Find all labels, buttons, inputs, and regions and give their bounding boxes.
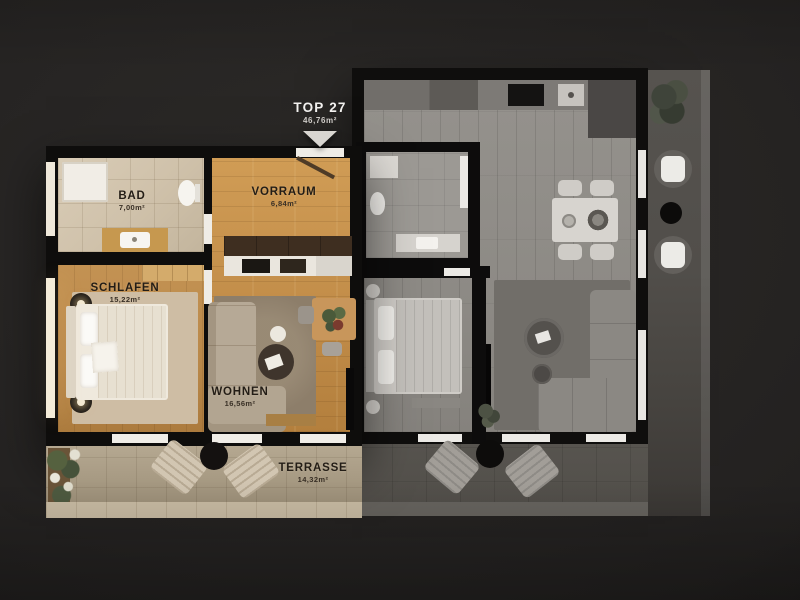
unit-area: 46,76m² [268,116,372,125]
neighbor-terrace-door [502,434,550,442]
neighbor-bathroom-door [460,156,468,208]
neighbor-dining-chair [590,180,614,196]
neighbor-pillow [378,306,394,340]
side-table [270,326,286,342]
neighbor-bed-bench [412,398,460,408]
lounge-chair [221,442,281,500]
window [46,278,55,418]
neighbor-terrace-door [586,434,626,442]
bedroom-door [204,270,212,304]
unit-pointer-arrow-icon [303,131,337,147]
highlighted-apartment [46,146,362,446]
neighbor-dining-chair [558,244,582,260]
neighbor-nightstand [366,400,380,414]
neighbor-window [638,330,646,420]
neighbor-balcony-chair [654,150,692,188]
dining-chair [322,342,342,356]
kitchen-sink [242,259,270,273]
neighbor-bed-headboard [366,300,374,392]
neighbor-dining-chair [590,244,614,260]
neighbor-tall-cabinet [588,80,636,138]
bed-headboard [66,306,76,398]
neighbor-apartment [352,68,648,444]
coffee-table [258,344,294,380]
floorplan-scene: BAD 7,00m² VORRAUM 6,84m² SCHLAFEN 15,22… [0,0,800,600]
toilet [178,180,196,206]
shower [62,162,108,202]
tv-panel [346,368,354,430]
neighbor-kitchen-sink [558,84,584,106]
kitchen-cooktop [280,259,306,273]
wardrobe [142,265,204,281]
neighbor-dining-table [552,198,618,242]
washbasin [120,232,150,248]
neighbor-window [638,230,646,278]
neighbor-coffee-table [524,318,564,358]
neighbor-side-table [532,364,552,384]
window [46,162,55,236]
neighbor-sofa-chaise [538,378,636,432]
neighbor-balcony [648,70,710,516]
neighbor-nightstand [366,284,380,298]
neighbor-lounge-chair [503,442,561,499]
neighbor-pillow [378,350,394,384]
neighbor-lounge-chair [423,438,481,495]
neighbor-bedroom-door [444,268,470,276]
planter-flowers [44,446,88,504]
neighbor-balcony-table [660,202,682,224]
neighbor-bed-duvet [396,300,460,392]
terrace-door [112,434,168,443]
unit-name: TOP 27 [268,100,372,115]
neighbor-balcony-chair [654,236,692,274]
neighbor-washer [370,156,398,178]
lounge-chair [149,438,209,496]
neighbor-terrace [358,444,648,516]
terrace-door [300,434,346,443]
bathroom-wall [58,252,204,265]
sideboard [266,414,316,426]
bathroom-door [204,214,212,244]
bed-throw [91,341,119,373]
dining-table [312,298,356,340]
pillow [80,312,98,346]
unit-marker: TOP 27 46,76m² [268,100,372,147]
neighbor-cooktop [508,84,544,106]
neighbor-terrace-table [476,440,504,468]
neighbor-plant [478,402,500,428]
neighbor-terrace-door [418,434,462,442]
kitchen-cabinet [224,236,352,256]
neighbor-dining-chair [558,180,582,196]
neighbor-basin [416,237,438,249]
neighbor-window [638,150,646,198]
kitchen-fridge [316,256,352,276]
dining-chair [298,306,314,324]
terrace [46,446,362,518]
neighbor-balcony-plant [650,80,690,128]
terrace-door [212,434,262,443]
neighbor-toilet [370,192,385,215]
entry-door-opening [296,148,344,157]
